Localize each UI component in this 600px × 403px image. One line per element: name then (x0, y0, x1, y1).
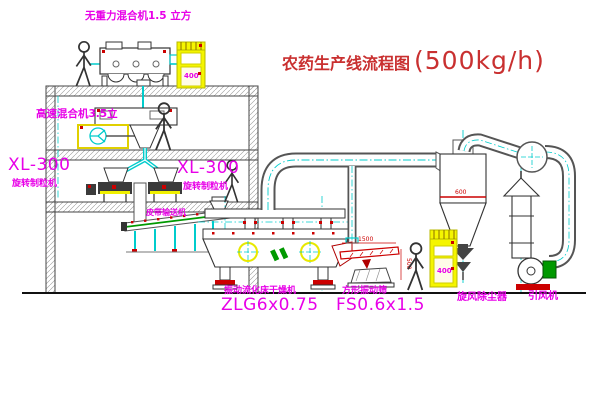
cyclone-dim: 600 (455, 189, 467, 196)
label-sieve-model: FS0.6x1.5 (336, 297, 425, 315)
label-granulator-right-model: XL-300 (177, 160, 239, 178)
induced-draft-fan-machine (516, 258, 556, 290)
label-dryer-model: ZLG6x0.75 (221, 297, 319, 315)
label-belt-conveyor: 皮带输送机 (146, 209, 186, 217)
person-figure-roof (76, 42, 90, 86)
granulator-left-machine (86, 168, 132, 202)
title-text: 农药生产线流程图 (282, 50, 410, 74)
vibrating-sieve-machine: 1500 500 (332, 236, 412, 287)
cabinet1-mark: 400 (184, 72, 199, 80)
label-fan: 引风机 (528, 292, 558, 303)
person-figure-ground (408, 243, 423, 290)
label-cyclone: 旋风除尘器 (457, 293, 507, 304)
sieve-length-dim: 1500 (358, 236, 373, 243)
label-granulator-right-name: 旋转制粒机 (183, 183, 228, 192)
title-capacity: (500kg/h) (414, 46, 545, 75)
gravity-free-mixer (90, 42, 184, 108)
control-cabinet-2: 400 (430, 230, 457, 287)
label-granulator-left-name: 旋转制粒机 (12, 180, 57, 189)
fluid-bed-dryer-machine (198, 196, 350, 291)
label-high-speed-mixer: 高速混合机3.5立 (36, 109, 118, 120)
label-granulator-left-model: XL-300 (8, 157, 70, 175)
cad-flow-diagram: 400 (0, 0, 600, 403)
control-cabinet-1: 400 (177, 42, 205, 88)
label-gravity-mixer: 无重力混合机1.5 立方 (85, 11, 191, 22)
diagram-title: 农药生产线流程图 (500kg/h) (282, 46, 545, 75)
cabinet2-mark: 400 (437, 267, 452, 275)
